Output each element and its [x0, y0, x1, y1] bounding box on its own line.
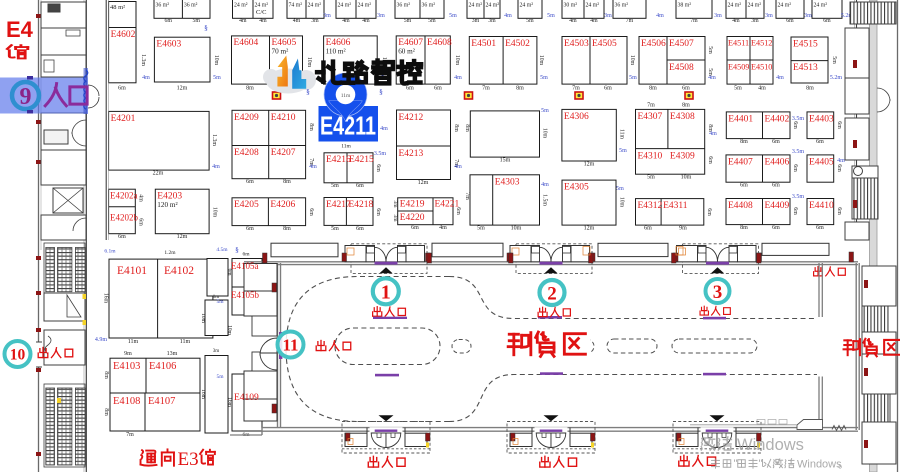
svg-text:36 m²: 36 m² — [156, 2, 170, 8]
svg-text:13m: 13m — [167, 351, 178, 357]
svg-text:11m: 11m — [128, 339, 139, 345]
svg-text:8m: 8m — [464, 124, 470, 132]
svg-text:E4508: E4508 — [669, 63, 694, 73]
svg-text:4m: 4m — [212, 164, 220, 170]
svg-text:E4306: E4306 — [564, 112, 589, 122]
svg-text:10m: 10m — [629, 55, 635, 66]
svg-text:E4101: E4101 — [117, 265, 147, 277]
svg-text:120 m²: 120 m² — [157, 201, 177, 209]
svg-text:3m: 3m — [472, 18, 480, 24]
svg-text:E4602: E4602 — [111, 30, 136, 40]
svg-text:4m: 4m — [380, 126, 388, 132]
svg-text:E4603: E4603 — [156, 40, 181, 50]
svg-text:3m: 3m — [714, 13, 722, 19]
svg-text:5m: 5m — [629, 75, 637, 81]
svg-text:6m: 6m — [246, 226, 254, 232]
svg-text:48 m²: 48 m² — [110, 4, 125, 11]
svg-text:E4503: E4503 — [564, 39, 589, 49]
svg-text:6m: 6m — [308, 208, 314, 216]
svg-text:10: 10 — [10, 347, 26, 364]
svg-text:7m: 7m — [464, 192, 470, 200]
svg-text:E4405: E4405 — [809, 158, 834, 168]
svg-text:E3: E3 — [178, 449, 199, 470]
svg-text:7m: 7m — [690, 18, 698, 24]
svg-text:E4505: E4505 — [592, 39, 617, 49]
svg-text:11m: 11m — [180, 339, 191, 345]
svg-text:E4605: E4605 — [272, 38, 297, 48]
svg-text:E4109: E4109 — [234, 393, 259, 403]
svg-text:24 m²: 24 m² — [469, 2, 483, 8]
svg-text:6m: 6m — [816, 225, 824, 231]
svg-text:9: 9 — [20, 84, 32, 110]
svg-text:12m: 12m — [584, 162, 595, 168]
svg-text:16m: 16m — [227, 397, 233, 408]
svg-text:7m: 7m — [482, 86, 490, 92]
svg-text:3m: 3m — [804, 13, 812, 19]
svg-text:E4108: E4108 — [113, 396, 140, 407]
svg-text:10m: 10m — [542, 128, 548, 139]
svg-text:4m: 4m — [541, 182, 549, 188]
svg-text:3.5m: 3.5m — [792, 194, 805, 200]
svg-text:E4608: E4608 — [427, 38, 452, 48]
svg-text:5m: 5m — [616, 186, 624, 192]
svg-text:6m: 6m — [772, 225, 780, 231]
svg-text:E4406: E4406 — [765, 158, 790, 168]
svg-text:E4202a: E4202a — [110, 191, 138, 201]
svg-text:E4202b: E4202b — [110, 213, 138, 223]
svg-text:3m: 3m — [392, 200, 398, 208]
svg-text:6m: 6m — [792, 164, 798, 172]
svg-text:8m: 8m — [308, 123, 314, 131]
svg-text:6m: 6m — [816, 139, 824, 145]
svg-text:10m: 10m — [538, 55, 544, 66]
svg-text:12m: 12m — [418, 180, 429, 186]
svg-text:10m: 10m — [306, 57, 312, 68]
svg-text:6m: 6m — [772, 139, 780, 145]
svg-text:6m: 6m — [411, 225, 419, 231]
svg-text:6m: 6m — [434, 86, 442, 92]
svg-text:10m: 10m — [200, 313, 206, 324]
svg-text:": " — [734, 458, 738, 470]
svg-text:4m: 4m — [293, 18, 301, 24]
svg-text:4m: 4m — [709, 131, 717, 137]
svg-text:4m: 4m — [138, 194, 144, 202]
svg-text:6m: 6m — [375, 208, 381, 216]
svg-text:24 m²: 24 m² — [586, 2, 600, 8]
svg-text:6m: 6m — [772, 183, 780, 189]
svg-text:6m: 6m — [823, 18, 831, 24]
svg-text:E4308: E4308 — [670, 112, 695, 122]
svg-text:74 m²: 74 m² — [289, 2, 303, 8]
svg-text:E4205: E4205 — [234, 200, 259, 210]
svg-text:6m: 6m — [242, 252, 250, 258]
svg-text:10m: 10m — [511, 226, 522, 232]
svg-text:5m: 5m — [213, 75, 221, 81]
svg-text:5m: 5m — [404, 18, 412, 24]
svg-text:6.1m: 6.1m — [104, 249, 116, 255]
svg-text:Windows: Windows — [737, 436, 804, 454]
svg-text:24 m²: 24 m² — [728, 2, 742, 8]
svg-text:3.5m: 3.5m — [792, 116, 805, 122]
svg-text:10m: 10m — [227, 325, 233, 336]
svg-text:E4311: E4311 — [663, 201, 688, 211]
svg-text:6m: 6m — [706, 208, 712, 216]
svg-text:。: 。 — [838, 459, 849, 471]
svg-text:4m: 4m — [656, 13, 664, 19]
svg-text:E4501: E4501 — [471, 39, 496, 49]
svg-text:38 m²: 38 m² — [678, 2, 692, 8]
svg-text:8m: 8m — [283, 179, 291, 185]
svg-text:E4102: E4102 — [164, 265, 194, 277]
svg-text:E4105a: E4105a — [231, 261, 259, 271]
svg-text:5m: 5m — [526, 18, 534, 24]
svg-text:7m: 7m — [647, 103, 655, 109]
svg-text:5m: 5m — [331, 226, 339, 232]
svg-text:4m: 4m — [569, 18, 577, 24]
svg-text:5m: 5m — [216, 299, 224, 305]
svg-text:22m: 22m — [153, 171, 164, 177]
svg-text:E4312: E4312 — [638, 201, 663, 211]
svg-text:5m: 5m — [449, 13, 457, 19]
svg-text:4m: 4m — [590, 18, 598, 24]
svg-text:36 m²: 36 m² — [422, 2, 436, 8]
svg-text:6m: 6m — [792, 121, 798, 129]
svg-text:24 m²: 24 m² — [520, 2, 534, 8]
svg-text:§: § — [379, 87, 383, 96]
svg-text:E4216: E4216 — [326, 155, 351, 165]
svg-text:2: 2 — [547, 283, 557, 304]
svg-text:6m: 6m — [707, 156, 713, 164]
svg-text:Windows: Windows — [797, 459, 842, 471]
svg-text:3m: 3m — [765, 13, 773, 19]
svg-text:E4218: E4218 — [348, 200, 373, 210]
svg-text:6m: 6m — [118, 86, 126, 92]
svg-text:E4305: E4305 — [564, 183, 589, 193]
svg-text:6m: 6m — [786, 18, 794, 24]
svg-text:5m: 5m — [540, 75, 548, 81]
svg-text:E4307: E4307 — [638, 112, 663, 122]
svg-text:E4210: E4210 — [271, 113, 296, 123]
svg-text:3m: 3m — [751, 18, 759, 24]
svg-text:6m: 6m — [740, 183, 748, 189]
svg-text:3m: 3m — [323, 13, 331, 19]
svg-text:E4105b: E4105b — [231, 290, 259, 300]
svg-text:4m: 4m — [758, 86, 766, 92]
svg-text:36 m²: 36 m² — [615, 2, 629, 8]
svg-text:E4107: E4107 — [148, 396, 175, 407]
svg-text:3: 3 — [713, 282, 723, 303]
svg-text:10m: 10m — [213, 55, 219, 66]
svg-text:E4310: E4310 — [638, 152, 663, 162]
svg-text:1: 1 — [381, 282, 391, 304]
svg-text:5m: 5m — [547, 13, 555, 19]
svg-text:3.5m: 3.5m — [374, 151, 387, 157]
svg-text:3m: 3m — [311, 18, 319, 24]
svg-text:E4402: E4402 — [765, 115, 790, 125]
svg-text:E4: E4 — [6, 17, 34, 42]
svg-text:70 m²: 70 m² — [272, 48, 289, 56]
svg-text:6m: 6m — [356, 226, 364, 232]
svg-text:10m: 10m — [454, 55, 460, 66]
svg-text:E4510: E4510 — [751, 63, 772, 72]
svg-text:3m: 3m — [488, 18, 496, 24]
svg-text:4m: 4m — [342, 18, 350, 24]
svg-text:1.3m: 1.3m — [140, 54, 146, 66]
svg-text:4m: 4m — [439, 225, 447, 231]
svg-text:6m: 6m — [406, 86, 414, 92]
svg-text:11m: 11m — [619, 129, 625, 140]
svg-text:4.5m: 4.5m — [216, 247, 228, 253]
svg-text:4m: 4m — [309, 164, 317, 170]
svg-text:5m: 5m — [734, 86, 742, 92]
svg-text:16m: 16m — [200, 389, 206, 400]
svg-text:9m: 9m — [124, 351, 132, 357]
svg-text:10m: 10m — [619, 197, 625, 208]
svg-text:36 m²: 36 m² — [397, 2, 411, 8]
svg-text:E4217: E4217 — [326, 200, 351, 210]
svg-text:4m: 4m — [142, 75, 150, 81]
svg-text:E4515: E4515 — [793, 40, 818, 50]
svg-text:6m: 6m — [118, 234, 126, 240]
svg-text:24 m²: 24 m² — [748, 2, 762, 8]
svg-text:4.9m: 4.9m — [95, 337, 108, 343]
svg-text:6m: 6m — [836, 164, 842, 172]
svg-text:6m: 6m — [604, 86, 612, 92]
svg-text:6m: 6m — [682, 86, 690, 92]
svg-text:15m: 15m — [500, 158, 511, 164]
svg-text:E4507: E4507 — [669, 39, 694, 49]
svg-text:4m: 4m — [708, 75, 716, 81]
svg-text:8m: 8m — [103, 408, 109, 416]
svg-text:": " — [759, 458, 763, 470]
svg-text:11: 11 — [282, 336, 298, 355]
svg-text:24 m²: 24 m² — [338, 2, 352, 8]
svg-text:§: § — [235, 245, 239, 254]
svg-text:5m: 5m — [707, 46, 713, 54]
svg-text:24 m²: 24 m² — [814, 2, 828, 8]
svg-text:110 m²: 110 m² — [326, 48, 346, 56]
svg-text:E4206: E4206 — [270, 200, 295, 210]
svg-text:E4207: E4207 — [271, 148, 296, 158]
svg-text:12m: 12m — [177, 234, 188, 240]
svg-text:E4213: E4213 — [399, 149, 424, 159]
svg-text:60 m²: 60 m² — [398, 48, 415, 56]
svg-text:E4303: E4303 — [495, 178, 520, 188]
svg-text:E4401: E4401 — [728, 115, 753, 125]
svg-text:8m: 8m — [806, 86, 814, 92]
svg-text:24 m²: 24 m² — [234, 2, 248, 8]
svg-text:E4407: E4407 — [728, 158, 753, 168]
svg-text:E4408: E4408 — [728, 201, 753, 211]
svg-text:5m: 5m — [428, 18, 436, 24]
svg-text:E4502: E4502 — [505, 39, 530, 49]
svg-text:5m: 5m — [831, 56, 837, 64]
svg-text:24 m²: 24 m² — [778, 2, 792, 8]
svg-text:E4106: E4106 — [149, 361, 176, 372]
svg-text:16m: 16m — [103, 293, 109, 304]
svg-text:6m: 6m — [356, 183, 364, 189]
svg-text:E4208: E4208 — [234, 148, 259, 158]
svg-text:E4309: E4309 — [670, 152, 695, 162]
svg-text:4m: 4m — [454, 75, 462, 81]
svg-text:6m: 6m — [375, 164, 381, 172]
svg-text:4m: 4m — [259, 18, 267, 24]
svg-text:5m: 5m — [192, 18, 200, 24]
svg-text:4m: 4m — [454, 164, 462, 170]
svg-text:8m: 8m — [516, 86, 524, 92]
svg-text:24 m²: 24 m² — [358, 2, 372, 8]
svg-text:8m: 8m — [103, 371, 109, 379]
svg-text:3m: 3m — [377, 13, 385, 19]
svg-text:E4410: E4410 — [809, 201, 834, 211]
svg-text:5m: 5m — [619, 148, 627, 154]
svg-text:E4409: E4409 — [765, 201, 790, 211]
svg-text:10m: 10m — [681, 175, 692, 181]
svg-text:12m: 12m — [177, 86, 188, 92]
svg-text:30 m²: 30 m² — [564, 2, 578, 8]
svg-text:4m: 4m — [362, 18, 370, 24]
svg-text:5m: 5m — [647, 175, 655, 181]
svg-text:E4604: E4604 — [234, 38, 259, 48]
svg-text:3m: 3m — [213, 349, 220, 354]
svg-text:6m: 6m — [836, 207, 842, 215]
svg-text:24 m²: 24 m² — [486, 2, 500, 8]
svg-text:4m: 4m — [732, 18, 740, 24]
svg-text:1.5m: 1.5m — [542, 194, 548, 206]
svg-text:5.2m: 5.2m — [830, 75, 843, 81]
svg-text:6m: 6m — [644, 226, 652, 232]
svg-text:1.3m: 1.3m — [211, 134, 217, 146]
svg-text:4m: 4m — [776, 75, 784, 81]
svg-text:E4509: E4509 — [728, 63, 749, 72]
svg-text:8m: 8m — [649, 86, 657, 92]
svg-text:3m: 3m — [392, 214, 398, 222]
svg-text:3.5m: 3.5m — [792, 149, 805, 155]
svg-text:§: § — [306, 87, 310, 96]
svg-text:6m: 6m — [836, 121, 842, 129]
svg-text:E4511: E4511 — [728, 39, 749, 48]
svg-text:E4203: E4203 — [157, 192, 182, 202]
svg-text:24 m²: 24 m² — [255, 2, 269, 8]
svg-text:5m: 5m — [331, 183, 339, 189]
svg-text:E4403: E4403 — [809, 115, 834, 125]
svg-text:9m: 9m — [679, 226, 687, 232]
svg-text:12m: 12m — [584, 226, 595, 232]
svg-text:7m: 7m — [572, 86, 580, 92]
svg-text:E4607: E4607 — [398, 38, 423, 48]
svg-text:E4215: E4215 — [349, 155, 374, 165]
svg-text:6m: 6m — [455, 207, 461, 215]
svg-text:11m: 11m — [341, 93, 351, 99]
svg-text:§: § — [204, 23, 208, 32]
svg-text:E4606: E4606 — [326, 38, 351, 48]
svg-text:E4220: E4220 — [400, 213, 425, 223]
svg-text:E4513: E4513 — [793, 63, 818, 73]
svg-text:5m: 5m — [707, 68, 713, 76]
svg-text:10m: 10m — [212, 207, 218, 218]
svg-text:8m: 8m — [453, 124, 459, 132]
svg-text:4m: 4m — [504, 13, 512, 19]
svg-text:6m: 6m — [792, 207, 798, 215]
svg-text:7m: 7m — [626, 18, 634, 24]
svg-text:5m: 5m — [541, 108, 549, 114]
svg-text:E4219: E4219 — [400, 200, 425, 210]
svg-text:E4103: E4103 — [113, 361, 140, 372]
svg-text:6m: 6m — [164, 18, 172, 24]
svg-text:8m: 8m — [246, 86, 254, 92]
svg-text:E4212: E4212 — [399, 113, 424, 123]
svg-text:6m: 6m — [138, 218, 144, 226]
svg-text:36 m²: 36 m² — [184, 2, 198, 8]
svg-text:E4512: E4512 — [751, 39, 772, 48]
svg-text:4m: 4m — [239, 18, 247, 24]
svg-text:E4506: E4506 — [641, 39, 666, 49]
svg-text:E4209: E4209 — [234, 113, 259, 123]
svg-text:8m: 8m — [682, 103, 690, 109]
svg-text:6m: 6m — [246, 179, 254, 185]
svg-text:3m: 3m — [604, 13, 612, 19]
svg-text:11m: 11m — [341, 144, 351, 150]
svg-text:5m: 5m — [216, 374, 224, 380]
svg-text:8m: 8m — [740, 225, 748, 231]
svg-text:24 m²: 24 m² — [308, 2, 322, 8]
svg-text:8m: 8m — [283, 226, 291, 232]
svg-text:5m: 5m — [477, 226, 485, 232]
svg-text:1.2m: 1.2m — [164, 250, 176, 256]
svg-text:4m: 4m — [837, 158, 845, 164]
svg-text:7m: 7m — [126, 432, 134, 438]
svg-text:C/C: C/C — [256, 9, 266, 16]
svg-text:E4201: E4201 — [111, 114, 136, 124]
svg-text:8m: 8m — [740, 139, 748, 145]
